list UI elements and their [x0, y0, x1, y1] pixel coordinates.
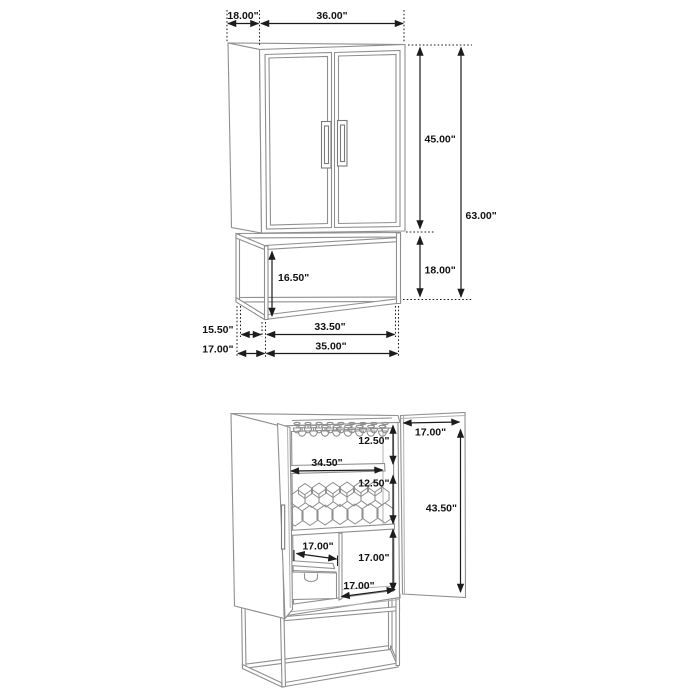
dim-overall-height: 63.00" [403, 48, 497, 300]
svg-text:36.00": 36.00" [316, 10, 347, 22]
cabinet-left-side [228, 43, 262, 233]
dim-top-depth: 18.00" [227, 10, 260, 47]
closed-view: 18.00" 36.00" 45.00" 63.00" 18.00" 16.50… [202, 10, 497, 357]
svg-text:43.50": 43.50" [426, 503, 457, 515]
svg-text:16.50": 16.50" [278, 272, 309, 284]
svg-text:15.50": 15.50" [202, 324, 233, 336]
cabinet-dimension-diagram: 18.00" 36.00" 45.00" 63.00" 18.00" 16.50… [0, 0, 700, 700]
cabinet-left-side [231, 414, 285, 619]
svg-text:17.00": 17.00" [343, 580, 374, 592]
svg-text:17.00": 17.00" [358, 552, 389, 564]
svg-text:17.00": 17.00" [415, 427, 446, 439]
dim-base-height: 18.00" [420, 237, 456, 297]
dim-base-opening-height: 16.50" [272, 252, 309, 317]
svg-text:18.00": 18.00" [425, 265, 456, 277]
svg-text:12.50": 12.50" [358, 435, 389, 447]
left-door-handle [282, 505, 285, 549]
diagram-canvas: 18.00" 36.00" 45.00" 63.00" 18.00" 16.50… [0, 0, 700, 700]
svg-text:12.50": 12.50" [358, 478, 389, 490]
vertical-divider [339, 533, 342, 600]
svg-text:17.00": 17.00" [302, 541, 333, 553]
svg-text:35.00": 35.00" [315, 341, 346, 353]
closed-base-frame [236, 233, 401, 320]
svg-text:34.50": 34.50" [311, 457, 342, 469]
svg-text:33.50": 33.50" [314, 321, 345, 333]
dim-upper-cabinet-height: 45.00" [406, 45, 472, 232]
svg-text:18.00": 18.00" [227, 10, 258, 22]
svg-text:63.00": 63.00" [466, 210, 497, 222]
closed-cabinet-body [228, 43, 405, 233]
drawer [289, 561, 337, 600]
open-view: 12.50" 34.50" 12.50" 17.00" 43.50" 17.00… [231, 413, 466, 688]
svg-text:17.00": 17.00" [202, 344, 233, 356]
dim-top-width: 36.00" [261, 10, 404, 42]
svg-text:45.00": 45.00" [425, 134, 456, 146]
